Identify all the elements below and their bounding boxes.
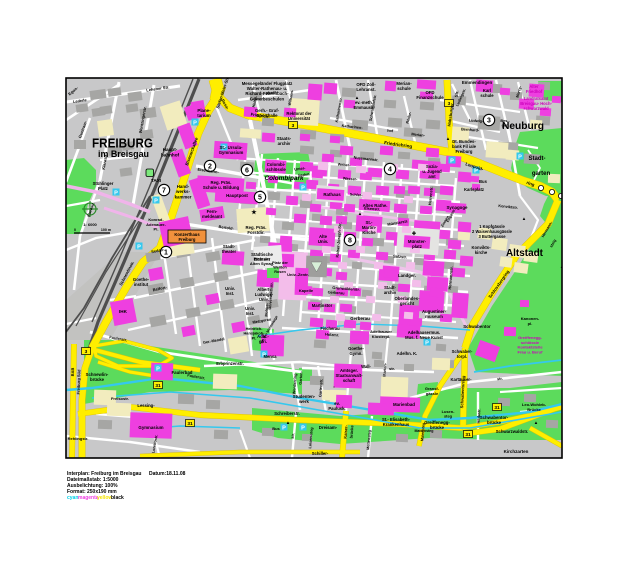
svg-text:Gymnasium: Gymnasium xyxy=(219,150,244,155)
svg-text:7: 7 xyxy=(162,187,166,194)
svg-text:Bus: Bus xyxy=(272,426,280,431)
svg-text:3: 3 xyxy=(487,117,491,124)
svg-text:Mensa: Mensa xyxy=(263,354,277,359)
svg-text:brücke: brücke xyxy=(349,424,355,438)
svg-text:Bus: Bus xyxy=(479,179,488,184)
svg-text:Lehranst.: Lehranst. xyxy=(356,87,375,92)
svg-text:torpl.: torpl. xyxy=(457,354,467,359)
svg-text:Gerberau: Gerberau xyxy=(350,316,370,321)
svg-text:1: 6000: 1: 6000 xyxy=(83,222,97,227)
svg-text:P: P xyxy=(156,366,160,372)
svg-text:Freisostr.: Freisostr. xyxy=(111,396,129,401)
svg-text:Rehlingstr.: Rehlingstr. xyxy=(68,436,89,441)
svg-text:Marienbad: Marienbad xyxy=(393,402,415,407)
svg-text:cyan: cyan xyxy=(67,495,78,501)
svg-text:brücke: brücke xyxy=(90,377,105,382)
svg-text:Freiburg: Freiburg xyxy=(456,149,473,154)
svg-text:schwarzwald: schwarzwald xyxy=(523,106,549,111)
svg-text:gässle: gässle xyxy=(426,391,439,396)
svg-text:P: P xyxy=(425,340,429,346)
svg-text:tarium: tarium xyxy=(197,113,211,118)
svg-text:Wall-: Wall- xyxy=(361,364,371,369)
svg-text:Schiller-: Schiller- xyxy=(312,451,329,456)
svg-text:Altstadt: Altstadt xyxy=(506,248,544,259)
svg-text:theater: theater xyxy=(222,249,237,254)
svg-text:Adelhn. K.: Adelhn. K. xyxy=(397,351,418,356)
svg-text:1: 1 xyxy=(164,249,168,256)
svg-text:TAXI: TAXI xyxy=(151,178,161,183)
svg-text:Kaiser-: Kaiser- xyxy=(343,424,349,439)
svg-text:Kapelle: Kapelle xyxy=(299,288,314,293)
svg-text:Brücke: Brücke xyxy=(527,407,541,412)
svg-text:Gymnasium: Gymnasium xyxy=(138,425,163,430)
svg-text:Univ.-Zentr.: Univ.-Zentr. xyxy=(287,272,309,277)
svg-text:platz: platz xyxy=(412,244,422,249)
svg-text:Schwarzwaldstr.: Schwarzwaldstr. xyxy=(496,429,529,434)
svg-text:Martinstor: Martinstor xyxy=(312,303,333,308)
svg-text:3: 3 xyxy=(85,349,88,355)
svg-text:▲: ▲ xyxy=(446,136,450,141)
svg-text:▲: ▲ xyxy=(522,216,526,221)
svg-text:Datum:18.11.08: Datum:18.11.08 xyxy=(149,471,186,477)
svg-text:museum: museum xyxy=(425,314,443,319)
svg-text:31: 31 xyxy=(155,383,161,389)
svg-text:Hildastr.: Hildastr. xyxy=(477,408,482,423)
svg-text:P: P xyxy=(450,158,454,164)
svg-text:meldeamt: meldeamt xyxy=(202,214,223,219)
svg-text:Bes.-: Bes.- xyxy=(500,119,510,123)
svg-text:Rathaus: Rathaus xyxy=(323,192,341,197)
svg-text:Freiburg: Freiburg xyxy=(179,237,196,242)
svg-text:Erbprinzenstr.: Erbprinzenstr. xyxy=(216,361,244,366)
svg-text:IHK: IHK xyxy=(119,309,128,314)
svg-text:31: 31 xyxy=(494,405,500,411)
svg-text:Finanzschule: Finanzschule xyxy=(416,95,444,100)
svg-text:Kirchzarten: Kirchzarten xyxy=(504,449,529,454)
svg-text:Platz: Platz xyxy=(98,186,108,191)
svg-text:schaft: schaft xyxy=(343,378,356,383)
svg-text:kammer: kammer xyxy=(175,194,192,199)
svg-text:3 Buttergasse: 3 Buttergasse xyxy=(478,234,506,239)
svg-text:31: 31 xyxy=(465,432,471,438)
svg-text:ger.: ger. xyxy=(502,124,509,128)
svg-text:Alten Synag.: Alten Synag. xyxy=(250,261,274,266)
svg-text:Hauptpost: Hauptpost xyxy=(226,193,248,198)
svg-text:werk: werk xyxy=(298,399,309,404)
svg-text:Forstdir.: Forstdir. xyxy=(247,230,264,235)
svg-text:archiv: archiv xyxy=(384,290,397,295)
svg-text:P: P xyxy=(282,425,286,431)
svg-text:P: P xyxy=(518,154,522,160)
svg-text:Stadt-: Stadt- xyxy=(529,156,546,162)
svg-text:Inst.: Inst. xyxy=(226,291,234,296)
svg-text:P: P xyxy=(301,425,305,431)
svg-text:Pl.: Pl. xyxy=(154,227,159,232)
svg-text:P: P xyxy=(154,198,158,204)
svg-text:schlössle: schlössle xyxy=(266,167,286,172)
svg-text:brücke: brücke xyxy=(487,420,502,425)
svg-text:Platz der: Platz der xyxy=(272,261,288,265)
svg-text:Schule u. Bildung: Schule u. Bildung xyxy=(203,185,240,190)
svg-text:str.: str. xyxy=(497,377,503,381)
svg-text:6: 6 xyxy=(245,167,249,174)
svg-text:Marien-: Marien- xyxy=(382,362,388,377)
svg-text:Weißen: Weißen xyxy=(273,266,287,270)
svg-text:schule: schule xyxy=(480,93,494,98)
svg-text:Schwabentor: Schwabentor xyxy=(463,324,491,329)
svg-text:Rosen: Rosen xyxy=(274,270,286,274)
svg-text:Haupt-: Haupt- xyxy=(163,147,178,152)
svg-text:Frau u. Beruf: Frau u. Beruf xyxy=(518,349,544,354)
svg-text:0: 0 xyxy=(74,228,76,232)
svg-text:gericht: gericht xyxy=(400,301,415,306)
svg-text:31: 31 xyxy=(187,421,193,427)
svg-text:Emmendingen: Emmendingen xyxy=(462,80,493,85)
svg-text:5: 5 xyxy=(258,194,262,201)
svg-text:Gymn.: Gymn. xyxy=(349,351,362,356)
svg-text:▲: ▲ xyxy=(358,211,362,216)
svg-text:Lessing-: Lessing- xyxy=(137,403,155,408)
svg-text:Kirche: Kirche xyxy=(362,230,376,235)
svg-text:Inst.: Inst. xyxy=(246,311,254,316)
svg-text:archiv: archiv xyxy=(278,141,291,146)
svg-text:★: ★ xyxy=(251,209,257,216)
svg-text:institut: institut xyxy=(134,282,149,287)
svg-text:Univ.: Univ. xyxy=(318,239,328,244)
svg-text:Pl.: Pl. xyxy=(252,335,257,340)
svg-text:▲: ▲ xyxy=(286,420,290,425)
svg-text:Klosterpl.: Klosterpl. xyxy=(372,334,390,339)
svg-text:str.: str. xyxy=(389,366,395,371)
svg-text:garten: garten xyxy=(532,171,551,177)
svg-text:100 m: 100 m xyxy=(101,228,111,232)
svg-text:Krankenhaus: Krankenhaus xyxy=(383,422,410,427)
svg-text:brücke: brücke xyxy=(430,425,445,430)
svg-text:bahnhof: bahnhof xyxy=(161,152,180,157)
svg-text:P: P xyxy=(114,190,118,196)
svg-text:BAB: BAB xyxy=(70,367,75,376)
svg-text:Friedhof: Friedhof xyxy=(526,89,543,94)
svg-text:schule: schule xyxy=(397,86,411,91)
svg-text:Universität: Universität xyxy=(288,116,311,121)
svg-text:P: P xyxy=(193,120,197,126)
svg-text:Mus. f. Neue Kunst: Mus. f. Neue Kunst xyxy=(405,335,443,340)
svg-text:P: P xyxy=(301,185,305,191)
svg-text:=: = xyxy=(333,385,335,389)
svg-text:4: 4 xyxy=(388,166,392,173)
svg-text:Synagoge: Synagoge xyxy=(447,205,469,210)
svg-text:Dreisam-: Dreisam- xyxy=(319,425,338,430)
svg-text:P: P xyxy=(137,244,141,250)
svg-text:steg: steg xyxy=(444,414,453,419)
svg-text:Schreiberstr.: Schreiberstr. xyxy=(274,411,300,416)
svg-text:pl.: pl. xyxy=(528,321,533,326)
svg-text:kirche: kirche xyxy=(475,250,488,255)
svg-text:Landger.: Landger. xyxy=(398,273,416,278)
svg-text:Univ.: Univ. xyxy=(259,297,269,302)
svg-text:Salzstr.: Salzstr. xyxy=(393,254,407,260)
svg-text:amt: amt xyxy=(428,174,436,179)
svg-text:magenta: magenta xyxy=(78,495,99,501)
svg-text:Freiburg Süd: Freiburg Süd xyxy=(76,369,82,395)
svg-text:▲: ▲ xyxy=(534,420,538,425)
svg-text:8: 8 xyxy=(348,237,352,244)
svg-text:3: 3 xyxy=(292,123,295,129)
svg-text:Fischerau: Fischerau xyxy=(320,326,340,331)
svg-text:Holzmr.: Holzmr. xyxy=(325,332,339,338)
svg-text:black: black xyxy=(111,495,124,501)
svg-text:Karlsplatz: Karlsplatz xyxy=(464,187,484,192)
svg-text:Paulusk.: Paulusk. xyxy=(328,406,345,411)
